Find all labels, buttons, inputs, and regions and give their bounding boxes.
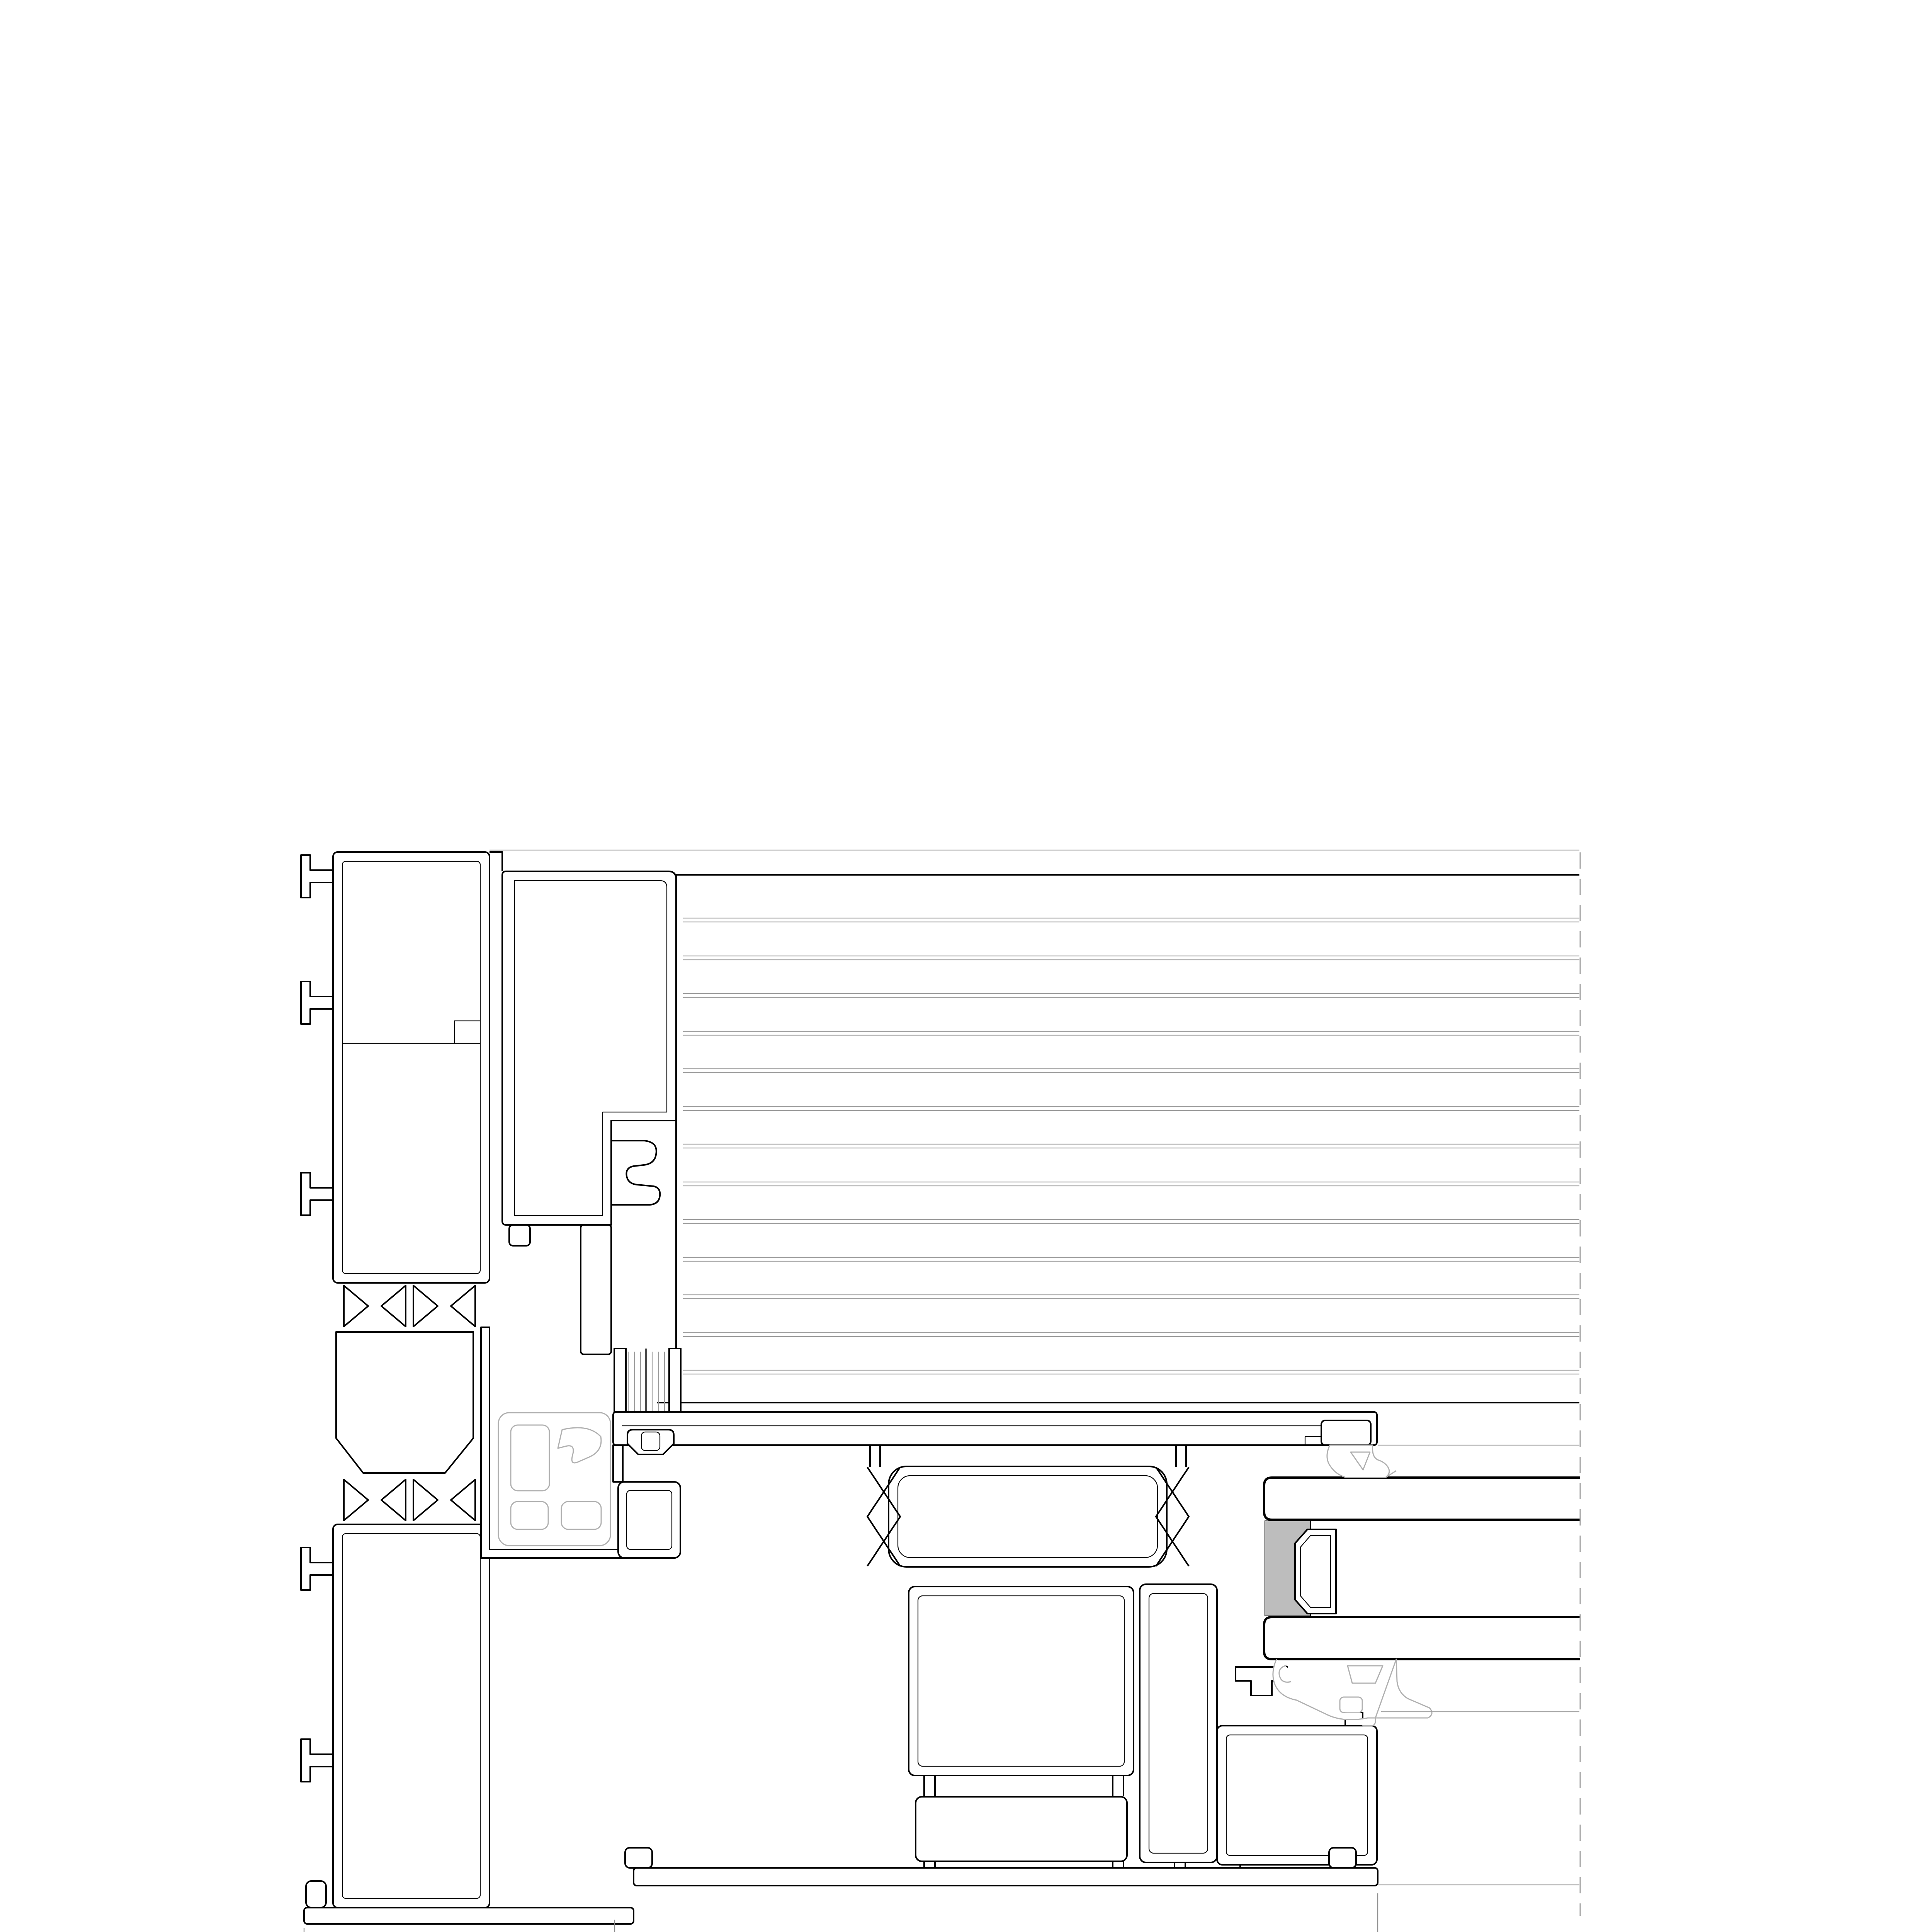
sash-profile bbox=[490, 852, 676, 1354]
panel-rib-lines bbox=[683, 918, 1579, 1374]
sill-outdoor-chamber bbox=[1217, 1726, 1377, 1865]
sill-gasket-channel bbox=[1321, 1420, 1371, 1445]
sash-jamb-step bbox=[490, 852, 502, 871]
corner-cleat-cell bbox=[511, 1425, 549, 1491]
bottom-glazing-gasket bbox=[1273, 1659, 1432, 1726]
sill-left-wall bbox=[613, 1445, 623, 1482]
corner-cleat bbox=[498, 1413, 610, 1546]
insulator-bar bbox=[413, 1480, 438, 1520]
jamb-hook-4 bbox=[301, 1548, 333, 1590]
sill-left-upstand bbox=[618, 1482, 680, 1558]
corner-cleat-cell bbox=[511, 1502, 548, 1529]
chamber-feet bbox=[924, 1776, 1124, 1796]
thermal-break-chamber bbox=[336, 1286, 475, 1520]
insulator-bar bbox=[381, 1286, 406, 1327]
sash-body bbox=[502, 871, 676, 1225]
insulator-bar bbox=[381, 1480, 406, 1520]
sash-panel-claw bbox=[611, 1141, 660, 1205]
sill-low-chamber bbox=[916, 1797, 1127, 1861]
jamb-hook-2 bbox=[301, 981, 333, 1024]
jamb-hook-3 bbox=[301, 1173, 333, 1215]
sill-top-rail bbox=[613, 1412, 1377, 1445]
jamb-hook-1 bbox=[301, 855, 333, 898]
sash-stem bbox=[581, 1225, 611, 1354]
insulator-bar bbox=[451, 1286, 475, 1327]
drawing-page: 41.0 102.0 bbox=[0, 0, 1919, 1932]
bottom-gasket-hollow bbox=[1340, 1697, 1362, 1713]
insulator-bar bbox=[413, 1286, 438, 1327]
sill-bottom-plate bbox=[634, 1868, 1378, 1886]
glass-pane-inner bbox=[1264, 1617, 1580, 1659]
glazing-unit bbox=[1264, 1478, 1580, 1659]
sash-bottom-hook bbox=[509, 1225, 530, 1246]
sill-right-foot-hook bbox=[1329, 1848, 1356, 1868]
screw-channel-right-cap bbox=[669, 1349, 681, 1412]
insulator-bar bbox=[451, 1480, 475, 1520]
insulator-bar bbox=[344, 1286, 368, 1327]
sill-tall-chamber bbox=[1140, 1584, 1217, 1862]
jamb-bottom-plate bbox=[304, 1908, 634, 1924]
sill-left-foot-hook bbox=[625, 1848, 652, 1868]
chamber-connectors bbox=[870, 1446, 1186, 1467]
jamb-lower-tube bbox=[333, 1524, 490, 1908]
spacer-tube-outer bbox=[1295, 1529, 1336, 1614]
insulating-chamber bbox=[336, 1332, 473, 1473]
profile-section-drawing: 41.0 102.0 bbox=[0, 0, 1919, 1932]
top-glazing-gasket bbox=[1327, 1445, 1389, 1478]
sill-center-chamber bbox=[889, 1466, 1167, 1567]
screw-channel-left-cap bbox=[614, 1349, 626, 1412]
insulator-bar bbox=[344, 1480, 368, 1520]
jamb-foot bbox=[306, 1881, 326, 1908]
corner-cleat-cell bbox=[561, 1502, 601, 1529]
fastener-screw-channel bbox=[614, 1349, 681, 1412]
jamb-upper-tube bbox=[333, 852, 490, 1283]
sill-wide-chamber bbox=[909, 1587, 1134, 1776]
jamb-hook-5 bbox=[301, 1739, 333, 1782]
bottom-gasket-chamber bbox=[1348, 1666, 1383, 1683]
glass-pane-outer bbox=[1264, 1478, 1580, 1520]
